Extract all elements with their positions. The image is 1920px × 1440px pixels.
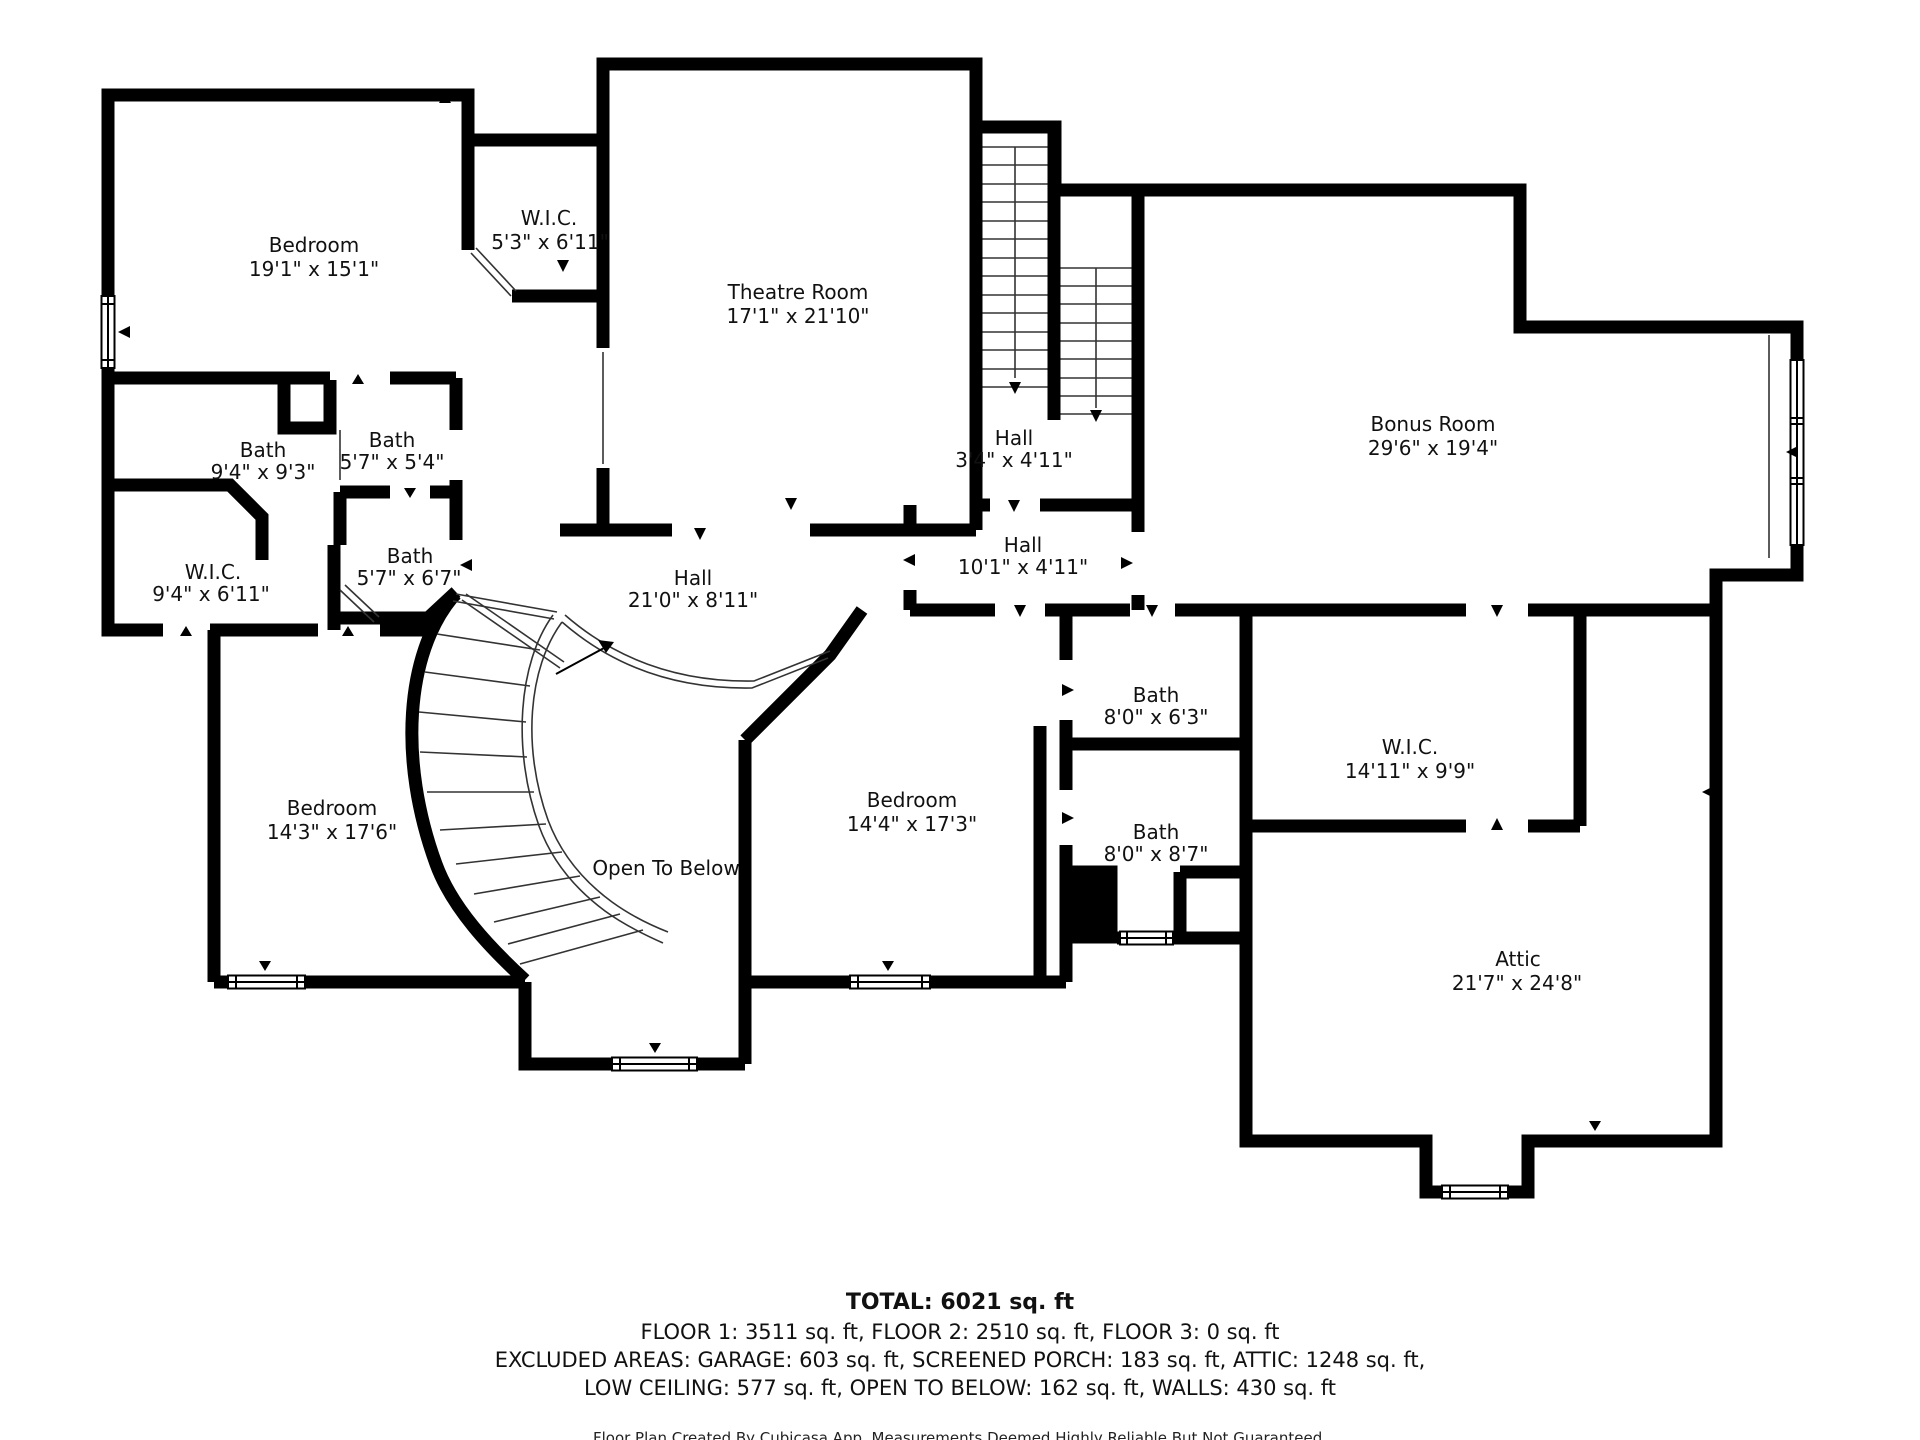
- floor-plan-page: Bedroom 19'1" x 15'1" W.I.C. 5'3" x 6'11…: [0, 0, 1920, 1440]
- room-label-attic: Attic: [1495, 947, 1541, 971]
- room-dims-wic-east: 14'11" x 9'9": [1345, 759, 1475, 783]
- room-label-bonus: Bonus Room: [1370, 412, 1495, 436]
- window: [1442, 1186, 1508, 1199]
- room-dims-bedroom-sw: 14'3" x 17'6": [267, 820, 397, 844]
- solid-wall-block: [1060, 866, 1118, 944]
- window: [1120, 932, 1173, 945]
- room-dims-theatre: 17'1" x 21'10": [726, 304, 869, 328]
- room-dims-bath-east-upper: 8'0" x 6'3": [1104, 705, 1209, 729]
- floor-plan-svg: Bedroom 19'1" x 15'1" W.I.C. 5'3" x 6'11…: [0, 0, 1920, 1260]
- stairs-down-arrow: [1090, 410, 1102, 422]
- total-area: TOTAL: 6021 sq. ft: [0, 1288, 1920, 1318]
- room-label-hall-east: Hall: [1004, 533, 1042, 557]
- room-label-bedroom-s: Bedroom: [867, 788, 957, 812]
- room-dims-bedroom-nw: 19'1" x 15'1": [249, 257, 379, 281]
- stairs-down-arrow: [1009, 382, 1021, 394]
- room-label-bath-s: Bath: [1133, 820, 1180, 844]
- room-label-open-to-below: Open To Below: [592, 856, 739, 880]
- room-label-theatre: Theatre Room: [727, 280, 869, 304]
- excluded-areas-2: LOW CEILING: 577 sq. ft, OPEN TO BELOW: …: [0, 1374, 1920, 1402]
- room-label-wic-nw: W.I.C.: [521, 206, 577, 230]
- room-label-bath-center-lower: Bath: [387, 544, 434, 568]
- room-label-hall-stairs: Hall: [995, 426, 1033, 450]
- room-dims-hall-east: 10'1" x 4'11": [958, 555, 1088, 579]
- room-dims-wic-west: 9'4" x 6'11": [152, 582, 270, 606]
- room-dims-hall-main: 21'0" x 8'11": [628, 588, 758, 612]
- staircase-curved: [419, 594, 830, 964]
- window: [850, 976, 930, 989]
- room-dims-bath-center-lower: 5'7" x 6'7": [357, 566, 462, 590]
- disclaimer: Floor Plan Created By Cubicasa App. Meas…: [0, 1429, 1920, 1440]
- room-label-bath-nw: Bath: [240, 438, 287, 462]
- floor-areas: FLOOR 1: 3511 sq. ft, FLOOR 2: 2510 sq. …: [0, 1318, 1920, 1346]
- room-label-bath-center-small: Bath: [369, 428, 416, 452]
- room-dims-bonus: 29'6" x 19'4": [1368, 436, 1498, 460]
- room-dims-bath-s: 8'0" x 8'7": [1104, 842, 1209, 866]
- room-dims-wic-nw: 5'3" x 6'11": [491, 230, 609, 254]
- walls: [108, 64, 1797, 1192]
- room-label-bedroom-nw: Bedroom: [269, 233, 359, 257]
- measurement-summary: TOTAL: 6021 sq. ft FLOOR 1: 3511 sq. ft,…: [0, 1288, 1920, 1440]
- windows: [102, 296, 1804, 1199]
- room-label-wic-east: W.I.C.: [1382, 735, 1438, 759]
- room-dims-hall-stairs: 3'4" x 4'11": [955, 448, 1073, 472]
- window: [228, 976, 305, 989]
- room-dims-bedroom-s: 14'4" x 17'3": [847, 812, 977, 836]
- window: [102, 296, 115, 368]
- room-dims-attic: 21'7" x 24'8": [1452, 971, 1582, 995]
- room-label-bedroom-sw: Bedroom: [287, 796, 377, 820]
- room-label-wic-west: W.I.C.: [185, 560, 241, 584]
- room-label-bath-east-upper: Bath: [1133, 683, 1180, 707]
- room-dims-bath-nw: 9'4" x 9'3": [211, 460, 316, 484]
- window: [612, 1058, 697, 1071]
- room-dims-bath-center-small: 5'7" x 5'4": [340, 450, 445, 474]
- excluded-areas-1: EXCLUDED AREAS: GARAGE: 603 sq. ft, SCRE…: [0, 1346, 1920, 1374]
- room-label-hall-main: Hall: [674, 566, 712, 590]
- room-labels: Bedroom 19'1" x 15'1" W.I.C. 5'3" x 6'11…: [152, 206, 1582, 995]
